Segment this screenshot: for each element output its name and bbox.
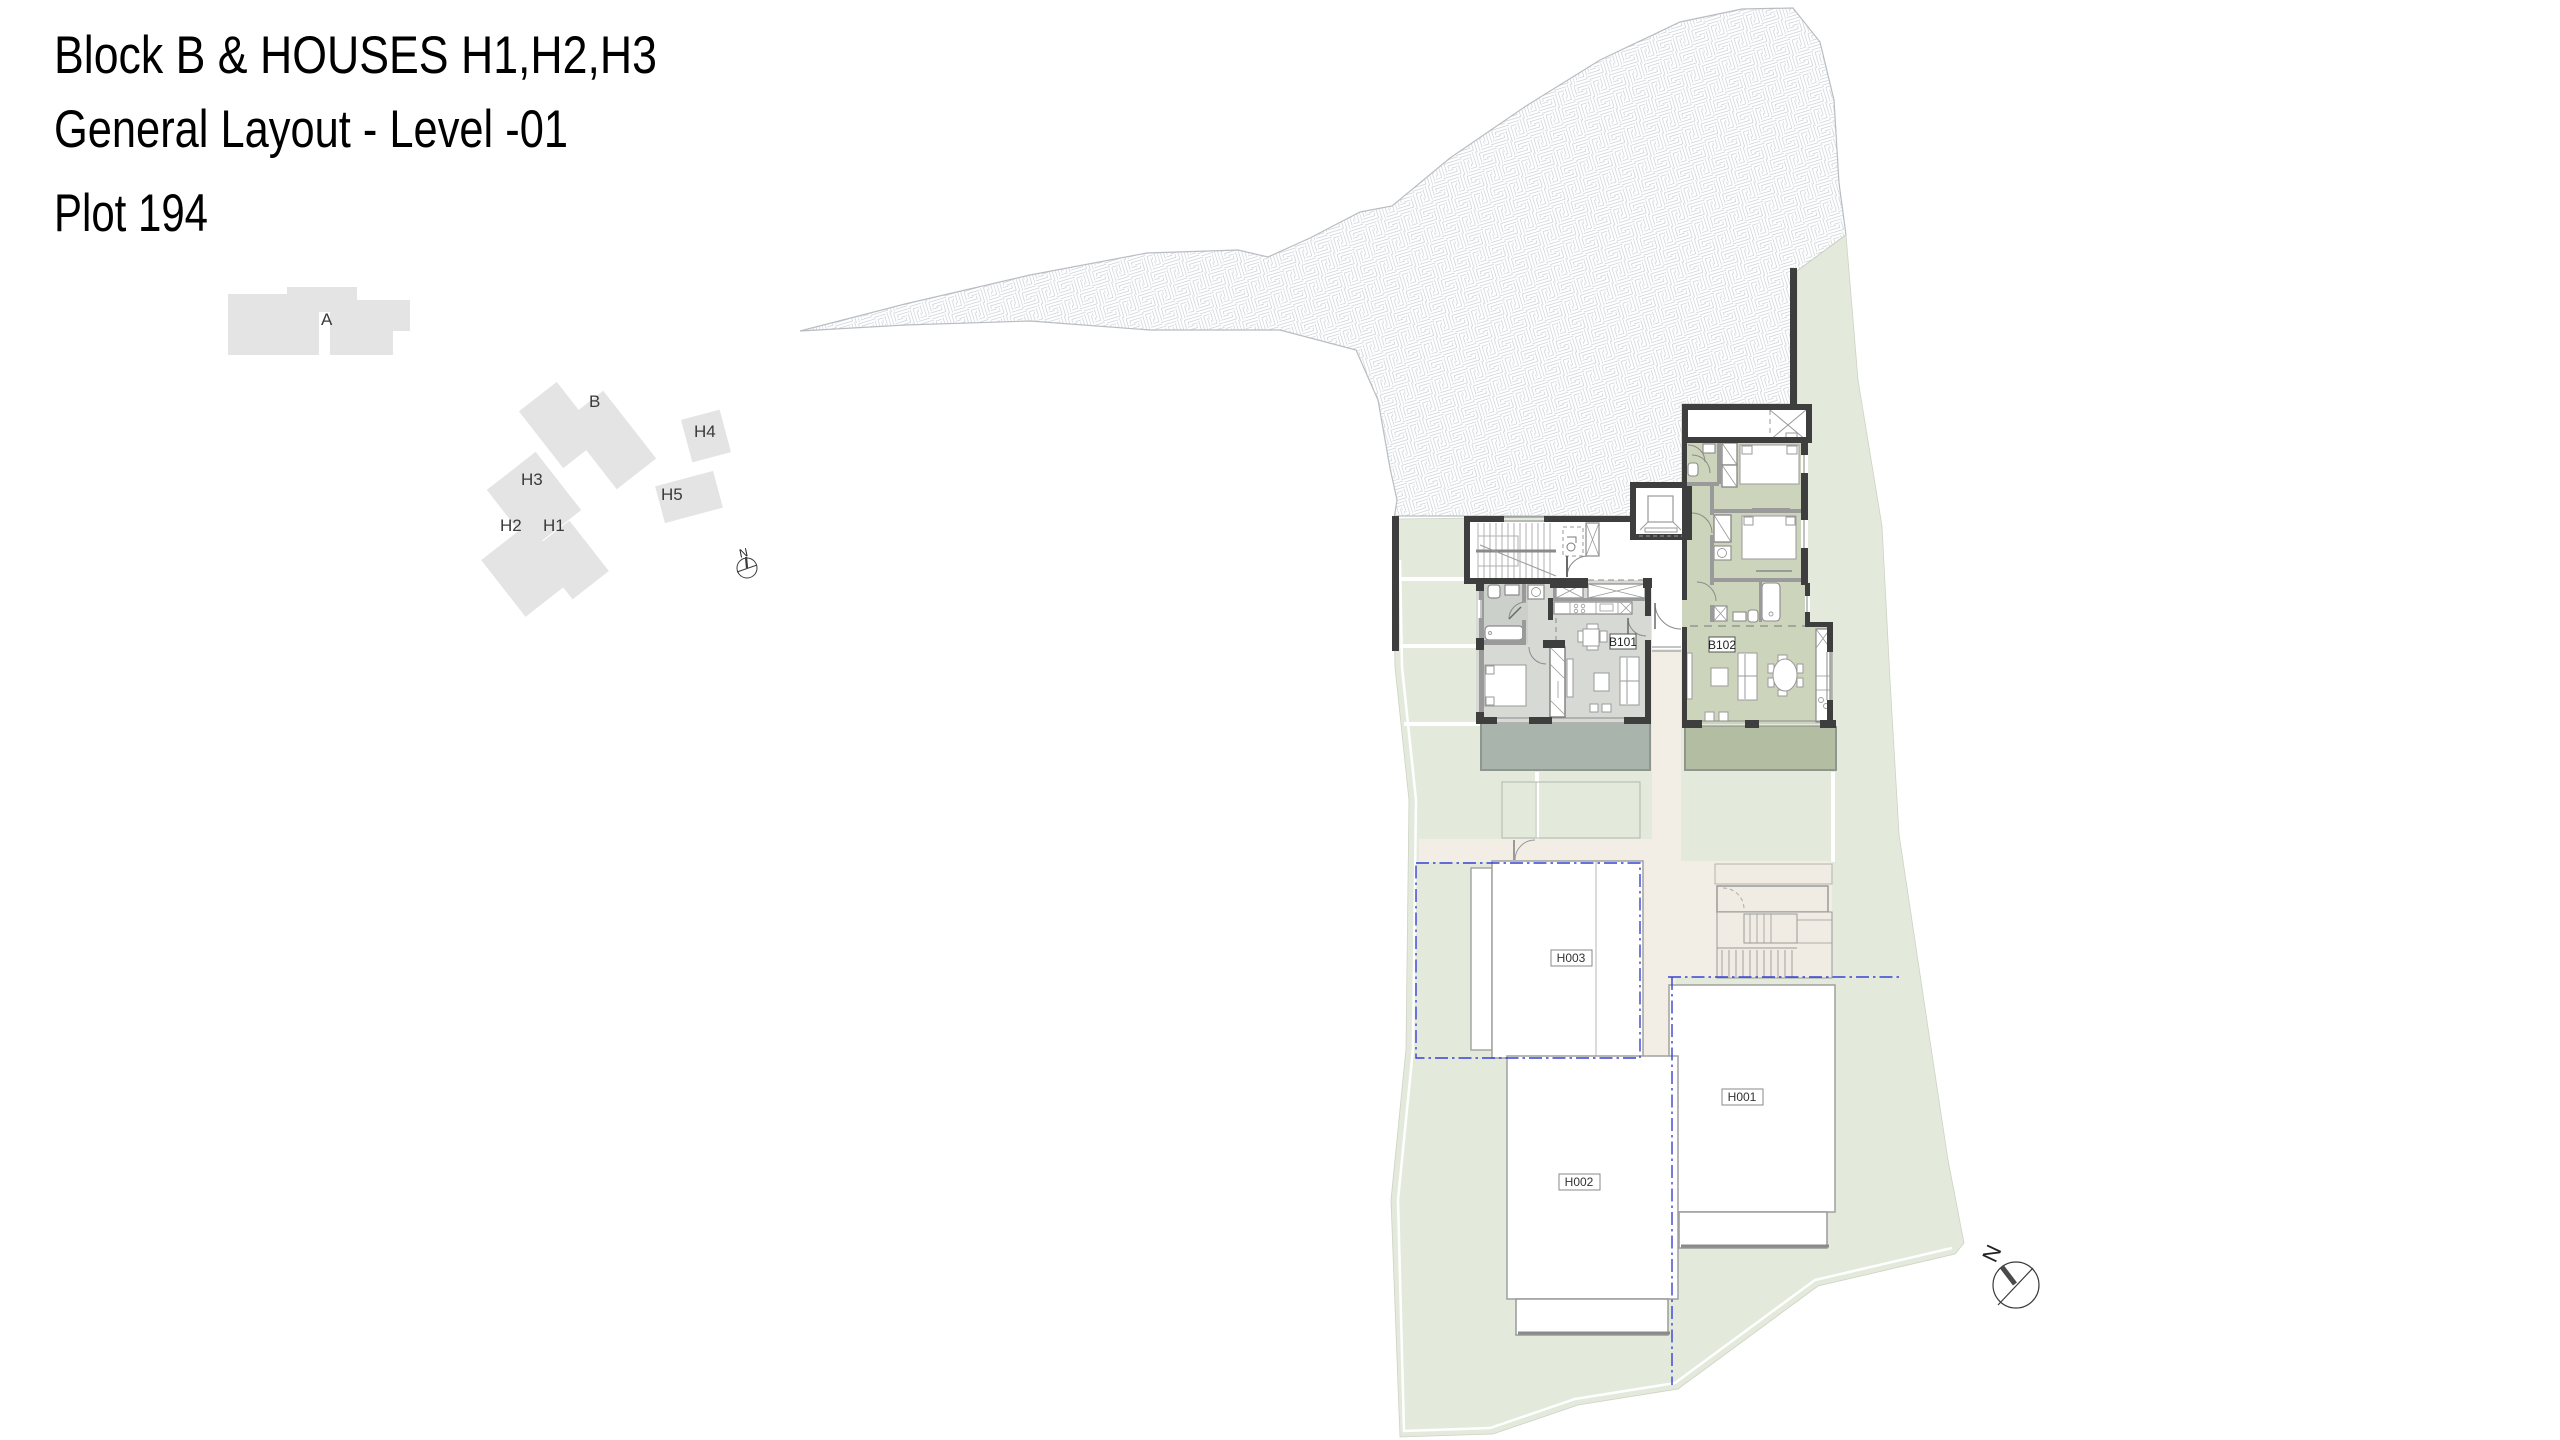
svg-text:Block B & HOUSES H1,H2,H3: Block B & HOUSES H1,H2,H3: [54, 26, 657, 85]
svg-text:N: N: [738, 545, 749, 560]
svg-text:H5: H5: [661, 485, 683, 504]
svg-text:B102: B102: [1708, 638, 1736, 652]
svg-text:N: N: [1977, 1241, 2006, 1266]
svg-text:A: A: [321, 310, 333, 329]
svg-text:B: B: [589, 392, 600, 411]
svg-text:B101: B101: [1609, 635, 1637, 649]
svg-text:H003: H003: [1557, 951, 1586, 965]
svg-text:Plot 194: Plot 194: [54, 184, 208, 243]
svg-text:H2: H2: [500, 516, 522, 535]
svg-text:H4: H4: [694, 422, 716, 441]
svg-text:H3: H3: [521, 470, 543, 489]
svg-text:H002: H002: [1565, 1175, 1594, 1189]
svg-text:General Layout - Level -01: General Layout - Level -01: [54, 100, 568, 159]
svg-text:H1: H1: [543, 516, 565, 535]
svg-text:H001: H001: [1728, 1090, 1757, 1104]
